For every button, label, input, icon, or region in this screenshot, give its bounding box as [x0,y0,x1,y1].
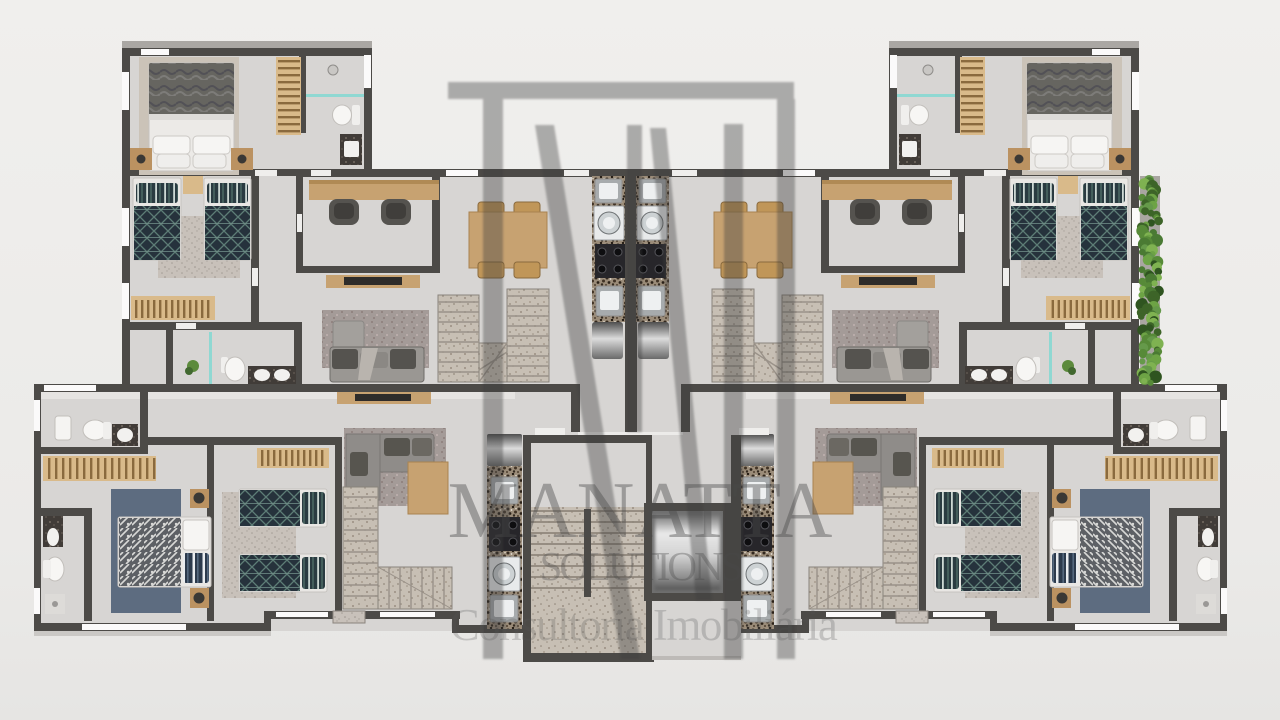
svg-text:SOLUTIONS: SOLUTIONS [540,543,742,589]
svg-text:MANATTA: MANATTA [448,467,833,555]
svg-text:Consultoria Imobiliária: Consultoria Imobiliária [450,600,838,650]
